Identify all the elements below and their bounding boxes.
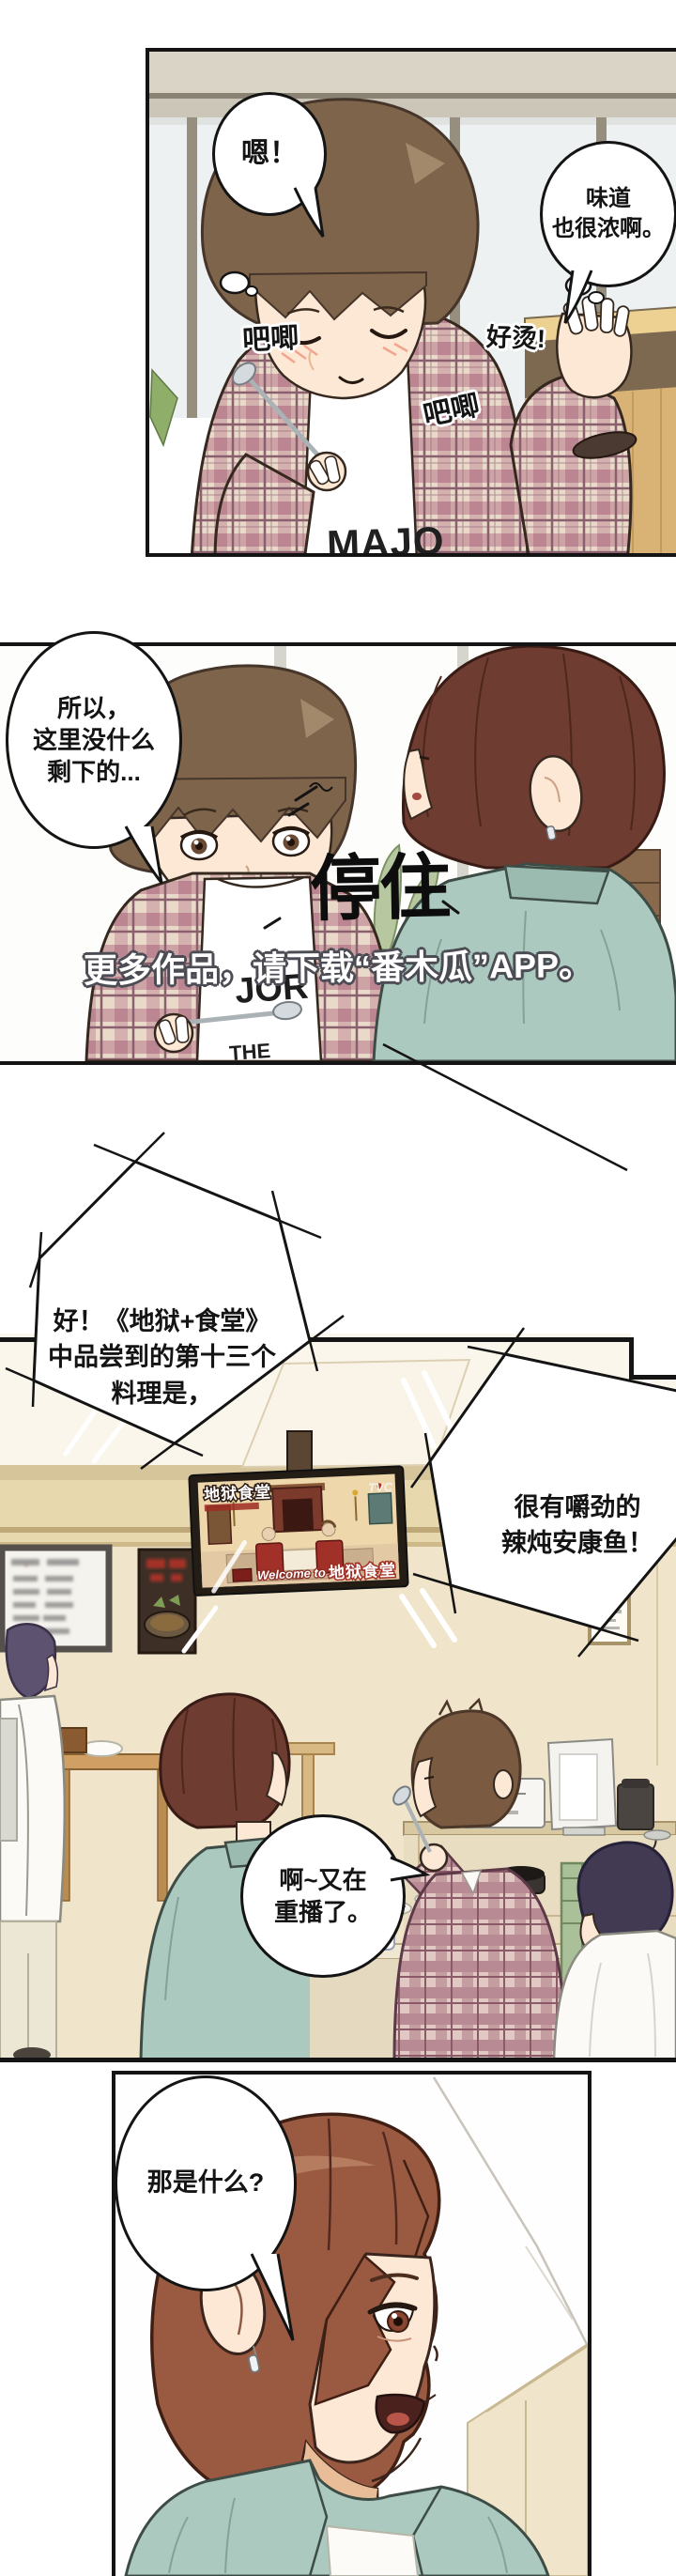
hex-bubble-1-text: 好！《地狱+食堂》 中品尝到的第十三个 料理是， bbox=[28, 1303, 296, 1411]
speech-bubble-what-tail bbox=[246, 2252, 299, 2346]
sfx-chew-1: 吧唧 bbox=[241, 314, 300, 358]
bubble-rerun-line1: 啊~又在 bbox=[279, 1864, 366, 1896]
speech-bubble-taste-tail bbox=[561, 269, 599, 327]
speech-bubble-rerun: 啊~又在 重播了。 bbox=[240, 1814, 406, 1978]
hex1-line1: 好！《地狱+食堂》 bbox=[28, 1303, 296, 1339]
bubble-soyi-line3: 剩下的... bbox=[47, 756, 141, 788]
sfx-stop: 停住 bbox=[309, 829, 450, 935]
watermark-text: 更多作品，请下载“番木瓜”APP。 bbox=[26, 938, 651, 994]
hex1-line3: 料理是， bbox=[28, 1376, 296, 1411]
speech-bubble-soyi-tail bbox=[120, 825, 163, 885]
steam-puff bbox=[221, 272, 249, 293]
speech-bubble-um-tail bbox=[289, 186, 327, 242]
speech-bubble-soyi: 所以， 这里没什么 剩下的... bbox=[6, 631, 182, 849]
bubble-taste-line1: 味道 bbox=[586, 184, 631, 214]
hex2-line1: 很有嚼劲的 bbox=[465, 1489, 676, 1525]
bubble-soyi-line1: 所以， bbox=[57, 692, 131, 724]
panel-3-border-bottom bbox=[0, 2058, 676, 2062]
bubble-um-text: 嗯！ bbox=[241, 135, 298, 173]
speech-bubble-taste: 味道 也很浓啊。 bbox=[540, 141, 676, 287]
bubble-taste-line2: 也很浓啊。 bbox=[552, 214, 665, 244]
telephone bbox=[618, 1784, 653, 1829]
hex-bubble-1 bbox=[6, 1133, 344, 1469]
speech-bubble-rerun-tail bbox=[389, 1854, 428, 1884]
bubble-what-text: 那是什么? bbox=[147, 2167, 265, 2200]
bubble-soyi-line2: 这里没什么 bbox=[33, 724, 155, 756]
hex1-line2: 中品尝到的第十三个 bbox=[28, 1339, 296, 1375]
tshirt-text: MAJO bbox=[326, 518, 445, 557]
hex-bubble-2-text: 很有嚼劲的 辣炖安康鱼！ bbox=[465, 1489, 676, 1562]
sketch-line bbox=[383, 1044, 627, 1170]
sfx-hot: 好烫! bbox=[485, 316, 545, 355]
webtoon-page: MAJO bbox=[0, 0, 676, 2576]
hex2-line2: 辣炖安康鱼！ bbox=[465, 1525, 676, 1561]
wall-top-band bbox=[149, 52, 676, 93]
bubble-rerun-line2: 重播了。 bbox=[274, 1896, 372, 1928]
